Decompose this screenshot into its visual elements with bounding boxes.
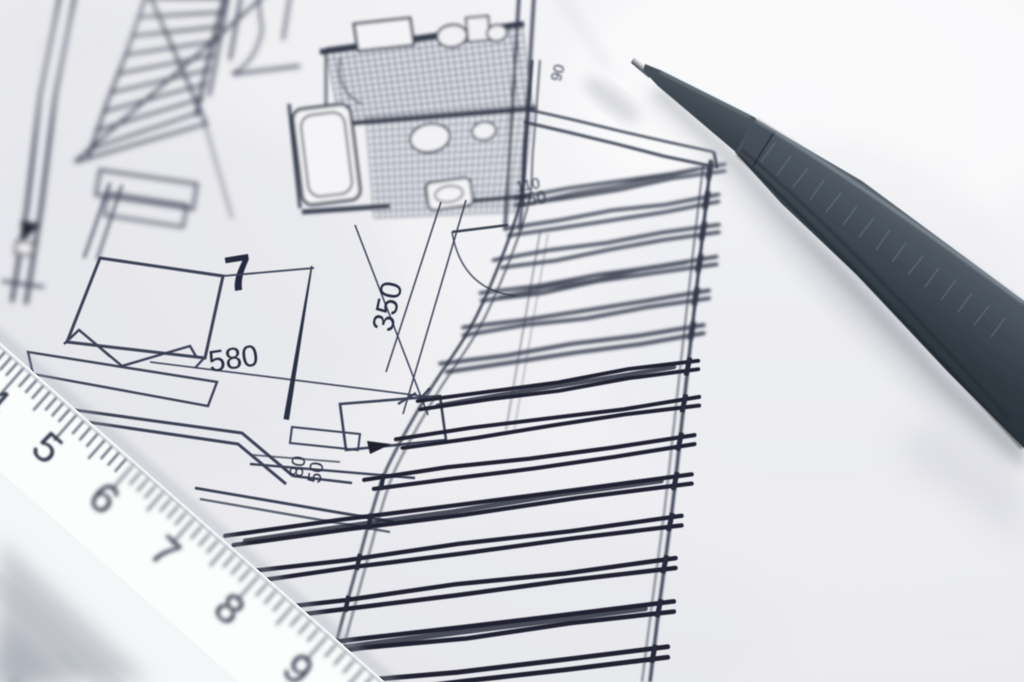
svg-text:580: 580: [206, 339, 260, 379]
svg-text:50: 50: [304, 460, 328, 484]
